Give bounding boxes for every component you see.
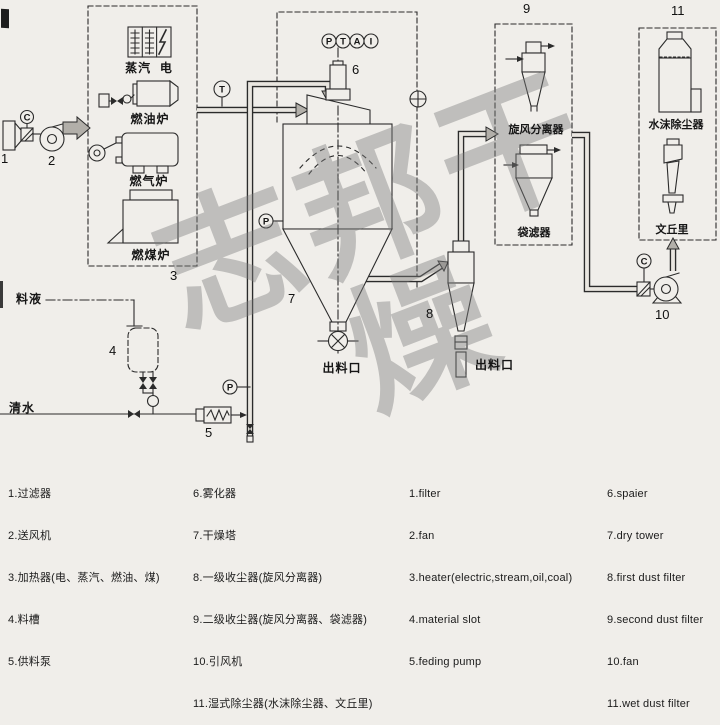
legend-line: 2.送风机	[8, 529, 160, 543]
c-inlet-bubble: C	[24, 113, 31, 124]
cyclone-separator-label: 旋风分离器	[505, 121, 567, 137]
tower-pressure-gauge: P	[259, 214, 283, 228]
legend-line: 3.加热器(电、蒸汽、燃油、煤)	[8, 571, 160, 585]
oil-furnace-label: 燃油炉	[126, 110, 174, 127]
legend-zh-col2: 6.雾化器 7.干燥塔 8.一级收尘器(旋风分离器) 9.二级收尘器(旋风分离器…	[193, 459, 373, 725]
number-6: 6	[352, 62, 359, 77]
legend-line: 4.料槽	[8, 613, 160, 627]
legend-line: 9.二级收尘器(旋风分离器、袋滤器)	[193, 613, 373, 627]
number-3: 3	[170, 268, 177, 283]
legend-en-col2: 6.spaier 7.dry tower 8.first dust filter…	[607, 459, 703, 725]
oil-furnace-icon	[99, 81, 178, 107]
feed-liquid-line	[46, 300, 142, 326]
legend-line: 9.second dust filter	[607, 613, 703, 627]
legend-line: 10.引风机	[193, 655, 373, 669]
t-bubble: T	[219, 85, 225, 96]
feed-pump	[196, 407, 247, 423]
drying-tower	[283, 95, 392, 356]
legend-line: 7.干燥塔	[193, 529, 373, 543]
scan-artifact	[1, 9, 9, 29]
flow-diagram: C	[0, 0, 720, 540]
gas-furnace-label: 燃气炉	[125, 172, 173, 189]
cyclone-separator-icon	[506, 42, 555, 111]
tower-discharge-valve	[318, 332, 358, 351]
legend-line: 5.feding pump	[409, 655, 572, 669]
feed-liquid-label: 料液	[16, 290, 42, 307]
legend-line: 6.spaier	[607, 487, 703, 501]
bag-filter-icon	[504, 145, 561, 216]
cyclone-discharge-label: 出料口	[475, 356, 514, 373]
t-head-bubble: T	[340, 37, 346, 48]
legend-line: 11.wet dust filter	[607, 697, 703, 711]
venturi-icon	[663, 139, 683, 213]
i-head-bubble: I	[370, 37, 373, 48]
legend-line: 3.heater(electric,stream,oil,coal)	[409, 571, 572, 585]
number-11: 11	[671, 3, 685, 18]
tower-exhaust-duct	[366, 261, 448, 279]
venturi-label: 文丘里	[651, 221, 693, 237]
p-feed-bubble: P	[227, 383, 234, 394]
legend-zh-col1: 1.过滤器 2.送风机 3.加热器(电、蒸汽、燃油、煤) 4.料槽 5.供料泵	[8, 459, 160, 683]
legend-line: 8.first dust filter	[607, 571, 703, 585]
ptai-instrument-cluster: P T A I	[322, 34, 378, 48]
bag-filter-label: 袋滤器	[509, 224, 559, 240]
fan-outlet-duct	[667, 238, 679, 271]
air-filter	[3, 121, 21, 150]
a-head-bubble: A	[354, 37, 361, 48]
number-5: 5	[205, 425, 212, 440]
legend-line: 4.material slot	[409, 613, 572, 627]
number-10: 10	[655, 307, 669, 322]
clean-water-label: 清水	[9, 399, 35, 416]
scan-artifact	[0, 281, 3, 308]
feed-pressure-gauge: P	[223, 380, 250, 394]
water-mist-collector-label: 水沫除尘器	[645, 116, 707, 132]
p-tower-bubble: P	[263, 217, 270, 228]
material-tank	[128, 328, 159, 414]
legend-line: 8.一级收尘器(旋风分离器)	[193, 571, 373, 585]
fan-inlet-duct	[572, 135, 638, 289]
number-1: 1	[1, 151, 8, 166]
temperature-gauge: T	[214, 81, 230, 106]
tower-discharge-label: 出料口	[318, 359, 366, 376]
legend-line: 10.fan	[607, 655, 703, 669]
c-fan-bubble: C	[641, 257, 648, 268]
legend-line: 11.湿式除尘器(水沫除尘器、文丘里)	[193, 697, 373, 711]
legend-line: 7.dry tower	[607, 529, 703, 543]
steam-electric-label: 蒸汽 电	[123, 59, 175, 76]
legend-en-col1: 1.filter 2.fan 3.heater(electric,stream,…	[409, 459, 572, 683]
supply-fan	[33, 117, 90, 151]
number-4: 4	[109, 343, 116, 358]
number-8: 8	[426, 306, 433, 321]
legend-line: 1.filter	[409, 487, 572, 501]
coal-furnace-label: 燃煤炉	[126, 246, 176, 263]
first-cyclone	[448, 241, 474, 377]
gas-furnace-icon	[89, 133, 178, 173]
damper-symbol-icon	[410, 91, 426, 107]
p-head-bubble: P	[326, 37, 333, 48]
coal-furnace-icon	[108, 190, 178, 243]
number-9: 9	[523, 1, 530, 16]
water-mist-collector-icon	[659, 32, 701, 112]
legend-line: 6.雾化器	[193, 487, 373, 501]
number-7: 7	[288, 291, 295, 306]
cyclone-outlet-duct	[461, 127, 498, 242]
steam-electric-heater-icon	[128, 27, 171, 57]
legend-line: 2.fan	[409, 529, 572, 543]
number-2: 2	[48, 153, 55, 168]
inlet-damper: C	[21, 111, 34, 142]
atomizer	[326, 48, 350, 100]
legend-line: 1.过滤器	[8, 487, 160, 501]
legend-line: 5.供料泵	[8, 655, 160, 669]
